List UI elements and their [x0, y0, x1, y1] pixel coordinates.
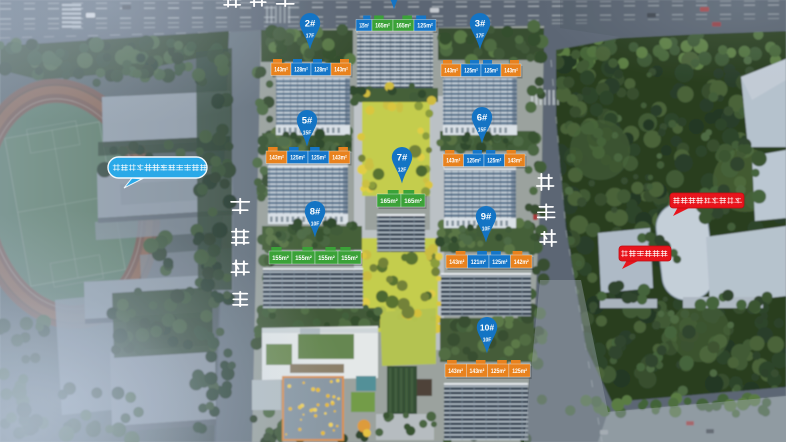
svg-text:9#: 9#	[481, 212, 492, 223]
svg-text:142m²: 142m²	[514, 259, 529, 266]
svg-text:165m²: 165m²	[380, 198, 398, 205]
svg-text:155m²: 155m²	[272, 255, 289, 262]
svg-text:143m²: 143m²	[332, 155, 347, 162]
svg-text:121m²: 121m²	[471, 259, 486, 266]
svg-text:143m²: 143m²	[448, 368, 463, 375]
svg-text:17F: 17F	[476, 34, 485, 40]
svg-text:143m²: 143m²	[444, 68, 458, 75]
svg-text:125m²: 125m²	[487, 158, 501, 165]
svg-text:8#: 8#	[310, 207, 321, 218]
svg-text:15F: 15F	[303, 131, 312, 137]
svg-text:125m²: 125m²	[491, 368, 506, 375]
svg-text:143m²: 143m²	[334, 67, 348, 74]
svg-text:155m²: 155m²	[295, 255, 312, 262]
svg-text:125m²: 125m²	[311, 155, 326, 162]
svg-text:143m²: 143m²	[446, 158, 460, 165]
svg-text:17F: 17F	[306, 34, 315, 40]
svg-text:5#: 5#	[302, 116, 313, 127]
svg-text:12F: 12F	[398, 168, 407, 174]
svg-text:143m²: 143m²	[508, 158, 522, 165]
svg-text:10F: 10F	[482, 227, 491, 233]
svg-text:2#: 2#	[305, 19, 316, 30]
svg-text:155m²: 155m²	[341, 255, 358, 262]
svg-text:165m²: 165m²	[396, 23, 411, 30]
svg-text:10F: 10F	[483, 338, 492, 344]
svg-text:125m²: 125m²	[464, 68, 478, 75]
svg-text:6#: 6#	[477, 113, 488, 124]
svg-text:10#: 10#	[480, 323, 494, 333]
svg-text:125m²: 125m²	[484, 68, 498, 75]
svg-text:143m²: 143m²	[470, 368, 485, 375]
svg-text:125m²: 125m²	[290, 155, 305, 162]
svg-text:128m²: 128m²	[294, 67, 308, 74]
svg-text:3#: 3#	[475, 19, 486, 30]
svg-text:125m²: 125m²	[467, 158, 481, 165]
svg-text:165m²: 165m²	[404, 198, 422, 205]
svg-text:128m²: 128m²	[314, 67, 328, 74]
svg-text:155m²: 155m²	[318, 255, 335, 262]
svg-text:143m²: 143m²	[274, 67, 288, 74]
svg-text:7#: 7#	[397, 153, 408, 164]
svg-text:125m²: 125m²	[359, 23, 369, 30]
svg-text:165m²: 165m²	[375, 23, 390, 30]
svg-text:143m²: 143m²	[449, 259, 464, 266]
svg-text:143m²: 143m²	[504, 68, 518, 75]
svg-text:15F: 15F	[478, 128, 487, 134]
svg-text:125m²: 125m²	[492, 259, 507, 266]
svg-text:125m²: 125m²	[512, 368, 527, 375]
svg-text:125m²: 125m²	[417, 23, 433, 30]
svg-text:10F: 10F	[311, 222, 320, 228]
svg-text:143m²: 143m²	[269, 155, 284, 162]
